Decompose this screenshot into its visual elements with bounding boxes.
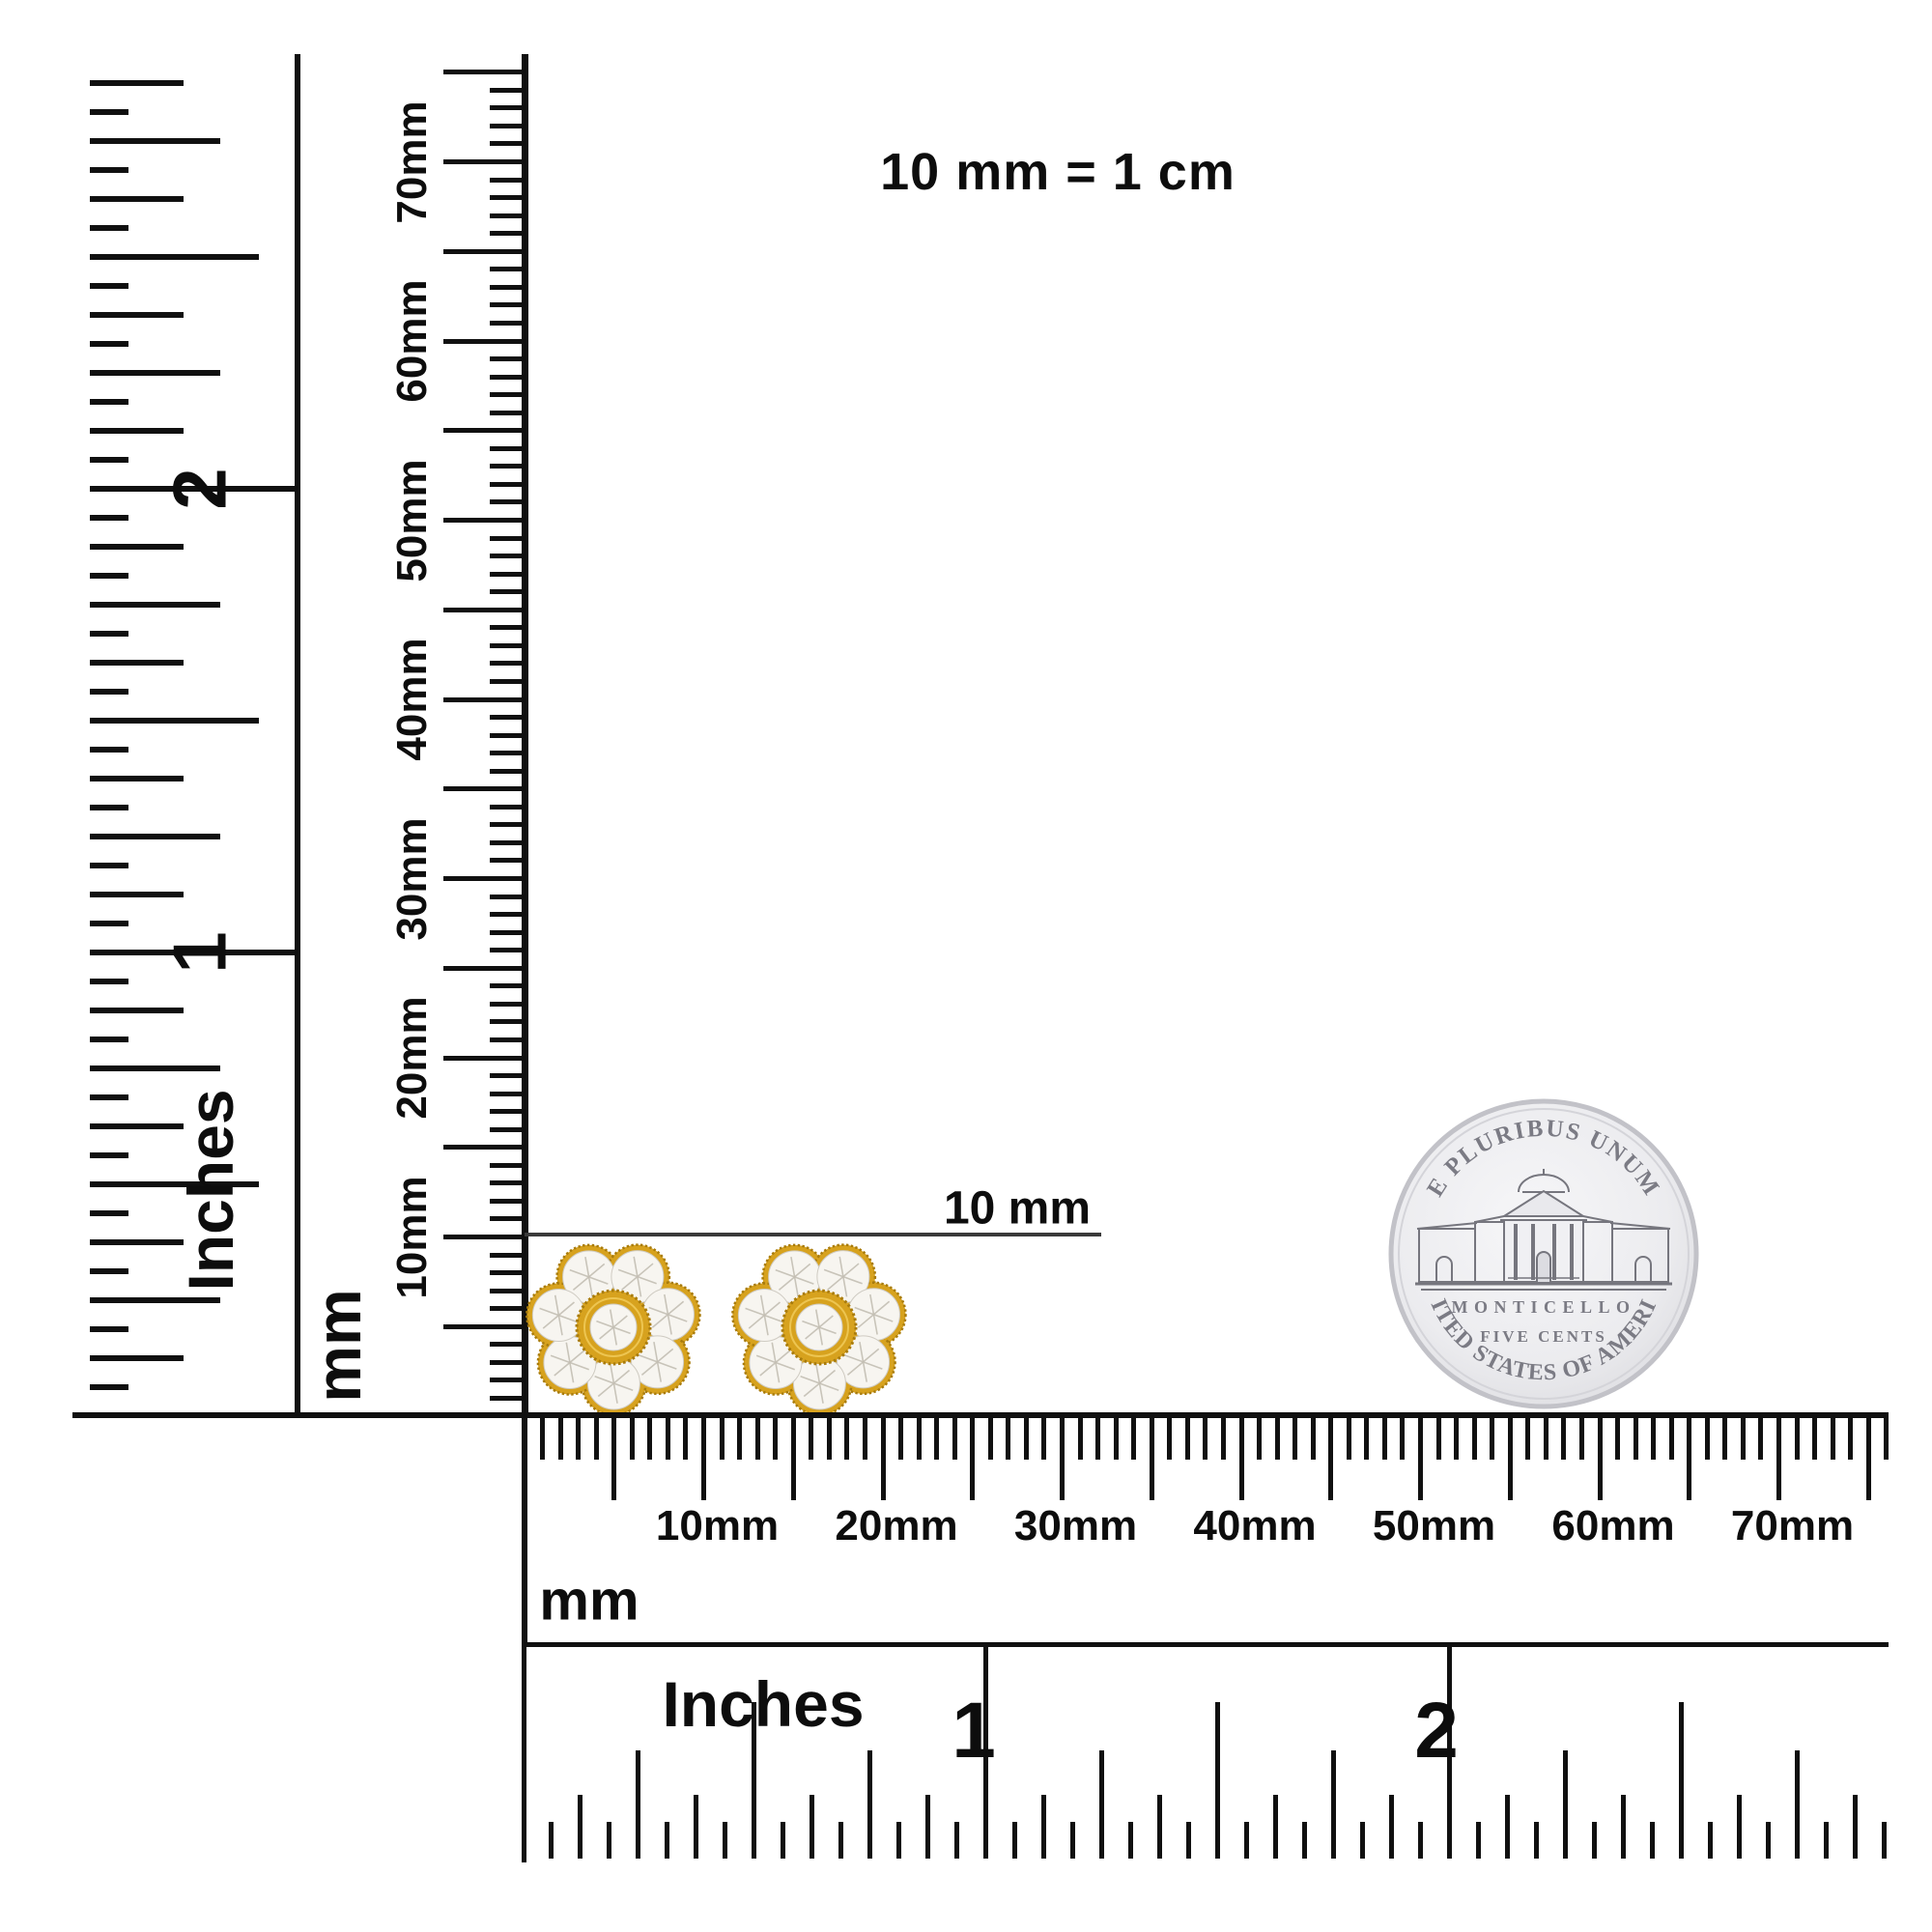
ruler-tick <box>90 805 128 810</box>
ruler-tick <box>490 1199 528 1204</box>
ruler-tick <box>90 80 184 86</box>
ruler-tick <box>1795 1418 1800 1460</box>
ruler-tick <box>90 515 128 521</box>
ruler-tick <box>1257 1418 1262 1460</box>
ruler-tick <box>490 195 528 200</box>
ruler-tick <box>1598 1418 1603 1500</box>
ruler-tick <box>490 1127 528 1132</box>
ruler-tick <box>490 178 528 183</box>
ruler-tick <box>490 948 528 952</box>
ruler-tick <box>490 733 528 738</box>
ruler-tick <box>755 1418 760 1460</box>
ruler-tick <box>490 822 528 827</box>
ruler-tick <box>90 225 128 231</box>
ruler-tick <box>490 464 528 469</box>
ruler-tick <box>647 1418 652 1460</box>
ruler-tick <box>594 1418 599 1460</box>
ruler-tick <box>90 660 184 666</box>
left-inch-ruler-unit-label: Inches <box>174 1089 247 1291</box>
ruler-tick <box>549 1822 554 1859</box>
ruler-tick <box>443 1324 528 1329</box>
ruler-tick <box>90 167 128 173</box>
ruler-tick <box>1741 1418 1746 1460</box>
ruler-tick <box>490 840 528 845</box>
ruler-tick <box>90 1268 128 1274</box>
ruler-tick <box>443 876 528 881</box>
ruler-tick <box>490 392 528 397</box>
ruler-tick <box>1766 1822 1771 1859</box>
ruler-tick <box>90 138 220 144</box>
ruler-tick <box>1651 1418 1656 1460</box>
ruler-tick <box>443 159 528 164</box>
ruler-tick <box>1302 1822 1307 1859</box>
ruler-tick <box>490 661 528 666</box>
ruler-tick <box>1579 1418 1584 1460</box>
ruler-tick <box>1244 1822 1249 1859</box>
ruler-tick <box>490 213 528 218</box>
ruler-tick <box>1360 1822 1365 1859</box>
bottom-inch-ruler-left-edge <box>522 1642 526 1862</box>
ruler-tick <box>954 1822 959 1859</box>
ruler-tick <box>1167 1418 1172 1460</box>
ruler-tick <box>443 339 528 344</box>
ruler-tick <box>90 109 128 115</box>
ruler-tick <box>723 1822 727 1859</box>
bottom-mm-ruler-left-edge <box>522 1412 527 1647</box>
ruler-tick <box>1758 1418 1763 1460</box>
ruler-tick <box>1012 1822 1017 1859</box>
ruler-tick <box>665 1822 669 1859</box>
ruler-tick <box>1185 1418 1190 1460</box>
ruler-tick <box>490 1037 528 1042</box>
ruler-tick <box>490 1109 528 1114</box>
ruler-tick <box>90 602 220 608</box>
ruler-tick <box>1563 1750 1568 1859</box>
ruler-tick <box>1215 1702 1220 1859</box>
diamond-flower-earrings <box>522 1236 918 1422</box>
flower-earring <box>732 1245 905 1415</box>
ruler-tick <box>90 1065 220 1071</box>
ruler-tick <box>443 518 528 523</box>
ruler-tick <box>1505 1795 1510 1859</box>
ruler-tick <box>810 1795 814 1859</box>
ruler-tick <box>1544 1418 1548 1460</box>
ruler-tick <box>1615 1418 1620 1460</box>
ruler-tick <box>791 1418 796 1500</box>
ruler-tick <box>1070 1822 1075 1859</box>
ruler-tick <box>683 1418 688 1460</box>
bottom-mm-ruler-label: 60mm <box>1551 1502 1674 1550</box>
conversion-note: 10 mm = 1 cm <box>880 142 1236 202</box>
ruler-tick <box>90 1094 128 1100</box>
ruler-tick <box>917 1418 922 1460</box>
ruler-tick <box>490 321 528 326</box>
ruler-tick <box>443 966 528 971</box>
ruler-tick <box>578 1795 582 1859</box>
ruler-tick <box>827 1418 832 1460</box>
ruler-tick <box>443 1145 528 1150</box>
ruler-tick <box>90 892 184 897</box>
ruler-tick <box>1490 1418 1494 1460</box>
ruler-tick <box>1848 1418 1853 1460</box>
ruler-tick <box>490 446 528 451</box>
ruler-tick <box>490 1216 528 1221</box>
ruler-tick <box>1776 1418 1781 1500</box>
ruler-tick <box>1418 1822 1423 1859</box>
ruler-tick <box>809 1418 813 1460</box>
ruler-tick <box>1669 1418 1674 1460</box>
ruler-tick <box>90 428 184 434</box>
ruler-tick <box>490 805 528 810</box>
ruler-tick <box>1525 1418 1530 1460</box>
ruler-tick <box>1824 1822 1829 1859</box>
ruler-tick <box>490 285 528 290</box>
ruler-tick <box>1041 1418 1046 1460</box>
ruler-tick <box>1737 1795 1742 1859</box>
ruler-tick <box>1006 1418 1010 1460</box>
ruler-tick <box>490 1019 528 1024</box>
ruler-tick <box>925 1795 930 1859</box>
ruler-tick <box>90 1008 184 1013</box>
vertical-mm-ruler-label: 60mm <box>388 279 437 402</box>
ruler-tick <box>1382 1418 1387 1460</box>
ruler-tick <box>490 411 528 415</box>
ruler-tick <box>881 1418 886 1500</box>
vertical-mm-ruler-label: 30mm <box>388 817 437 940</box>
ruler-tick <box>490 679 528 684</box>
ruler-tick <box>844 1418 849 1460</box>
ruler-tick <box>490 141 528 146</box>
ruler-tick <box>867 1750 872 1859</box>
bottom-mm-ruler-unit-label: mm <box>539 1569 639 1634</box>
nickel-coin: E PLURIBUS UNUM UNITED STATES OF AMERICA <box>1388 1098 1699 1409</box>
ruler-tick <box>490 1092 528 1096</box>
ruler-tick <box>1347 1418 1351 1460</box>
ruler-tick <box>1203 1418 1207 1460</box>
measurement-label: 10 mm <box>944 1182 1091 1236</box>
ruler-tick <box>1634 1418 1638 1460</box>
ruler-tick <box>1095 1418 1100 1460</box>
inch-number: 2 <box>156 468 244 509</box>
ruler-tick <box>611 1418 616 1500</box>
ruler-tick <box>490 124 528 128</box>
bottom-inch-ruler-unit-label: Inches <box>662 1667 864 1741</box>
ruler-tick <box>898 1418 903 1460</box>
ruler-tick <box>1621 1795 1626 1859</box>
ruler-tick <box>90 370 220 376</box>
ruler-tick <box>1882 1822 1887 1859</box>
ruler-tick <box>896 1822 901 1859</box>
ruler-tick <box>90 573 128 579</box>
ruler-tick <box>90 341 128 347</box>
ruler-tick <box>970 1418 975 1500</box>
ruler-tick <box>490 482 528 487</box>
ruler-tick <box>90 1123 184 1129</box>
vertical-mm-ruler-unit-label: mm <box>301 1289 375 1402</box>
ruler-tick <box>90 1037 128 1042</box>
ruler-tick <box>1364 1418 1369 1460</box>
ruler-tick <box>636 1750 640 1859</box>
ruler-tick <box>490 912 528 917</box>
ruler-tick <box>1239 1418 1244 1500</box>
ruler-tick <box>490 589 528 594</box>
ruler-tick <box>1687 1418 1691 1500</box>
ruler-tick <box>1454 1418 1459 1460</box>
bottom-mm-ruler-label: 10mm <box>656 1502 779 1550</box>
ruler-tick <box>1157 1795 1162 1859</box>
ruler-tick <box>1186 1822 1191 1859</box>
ruler-tick <box>1328 1418 1333 1500</box>
ruler-tick <box>1273 1795 1278 1859</box>
ruler-tick <box>490 231 528 236</box>
ruler-tick <box>490 858 528 863</box>
ruler-tick <box>490 267 528 271</box>
inch-number: 1 <box>952 1686 996 1776</box>
ruler-tick <box>490 1180 528 1185</box>
ruler-tick <box>701 1418 706 1500</box>
ruler-tick <box>1722 1418 1727 1460</box>
ruler-tick <box>558 1418 563 1460</box>
ruler-tick <box>1650 1822 1655 1859</box>
ruler-tick <box>1795 1750 1800 1859</box>
ruler-tick <box>490 1163 528 1168</box>
ruler-tick <box>90 863 128 868</box>
ruler-tick <box>1508 1418 1513 1500</box>
ruler-tick <box>90 312 184 318</box>
ruler-tick <box>490 356 528 361</box>
bottom-inch-ruler-top-line <box>522 1642 1889 1647</box>
ruler-tick <box>490 930 528 935</box>
ruler-tick <box>90 689 128 695</box>
ruler-tick <box>90 979 128 984</box>
ruler-tick <box>490 499 528 504</box>
ruler-tick <box>490 536 528 541</box>
coin-building-label: MONTICELLO <box>1451 1297 1635 1317</box>
ruler-tick <box>1078 1418 1083 1460</box>
ruler-tick <box>490 769 528 774</box>
ruler-tick <box>934 1418 939 1460</box>
vertical-mm-ruler-label: 40mm <box>388 638 437 760</box>
ruler-tick <box>1831 1418 1835 1460</box>
ruler-tick <box>607 1822 611 1859</box>
inch-number: 2 <box>1414 1686 1459 1776</box>
ruler-tick <box>90 544 184 550</box>
ruler-tick <box>630 1418 635 1460</box>
ruler-tick <box>1561 1418 1566 1460</box>
ruler-tick <box>720 1418 724 1460</box>
ruler-tick <box>90 1384 128 1390</box>
ruler-tick <box>443 786 528 791</box>
ruler-tick <box>490 1002 528 1007</box>
ruler-tick <box>1534 1822 1539 1859</box>
ruler-tick <box>90 196 184 202</box>
ruler-tick <box>1275 1418 1280 1460</box>
flower-earring <box>526 1245 699 1415</box>
ruler-tick <box>1150 1418 1154 1500</box>
vertical-mm-ruler-label: 20mm <box>388 996 437 1119</box>
ruler-tick <box>1866 1418 1871 1500</box>
ruler-tick <box>988 1418 993 1460</box>
ruler-tick <box>1436 1418 1441 1460</box>
inch-number: 1 <box>156 931 244 973</box>
ruler-tick <box>1221 1418 1226 1460</box>
ruler-tick <box>576 1418 581 1460</box>
ruler-tick <box>443 1235 528 1239</box>
ruler-tick <box>443 1056 528 1061</box>
ruler-tick <box>1884 1418 1889 1460</box>
ruler-tick <box>1060 1418 1065 1500</box>
ruler-tick <box>90 1326 128 1332</box>
ruler-tick <box>90 834 220 839</box>
ruler-tick <box>90 254 259 260</box>
ruler-tick <box>490 643 528 648</box>
ruler-tick <box>90 921 128 926</box>
ruler-tick <box>1311 1418 1316 1460</box>
ruler-tick <box>838 1822 843 1859</box>
ruler-tick <box>952 1418 957 1460</box>
ruler-tick <box>1418 1418 1423 1500</box>
ruler-tick <box>90 1210 128 1216</box>
ruler-tick <box>781 1822 785 1859</box>
bottom-mm-ruler-label: 50mm <box>1373 1502 1495 1550</box>
coin-denomination: FIVE CENTS <box>1480 1327 1607 1346</box>
ruler-tick <box>90 1355 184 1361</box>
ruler-tick <box>490 625 528 630</box>
ruler-tick <box>1131 1418 1136 1460</box>
ruler-tick <box>90 283 128 289</box>
ruler-tick <box>90 399 128 405</box>
ruler-tick <box>490 88 528 93</box>
ruler-tick <box>490 302 528 307</box>
left-inch-ruler-edge <box>295 54 300 1418</box>
ruler-tick <box>490 895 528 899</box>
bottom-mm-ruler-label: 70mm <box>1731 1502 1854 1550</box>
ruler-tick <box>694 1795 698 1859</box>
ruler-tick <box>490 375 528 380</box>
ruler-tick <box>90 747 128 753</box>
ruler-tick <box>1293 1418 1297 1460</box>
ruler-tick <box>490 983 528 988</box>
bottom-mm-ruler-label: 20mm <box>835 1502 957 1550</box>
ruler-tick <box>490 105 528 110</box>
ruler-tick <box>1812 1418 1817 1460</box>
product-scale-image: 10 mm = 1 cm 1 2 Inches 10mm20mm30mm40mm… <box>0 0 1932 1932</box>
vertical-mm-ruler-label: 10mm <box>388 1176 437 1298</box>
ruler-tick <box>1331 1750 1336 1859</box>
ruler-tick <box>1476 1822 1481 1859</box>
ruler-tick <box>1041 1795 1046 1859</box>
ruler-tick <box>443 249 528 254</box>
ruler-tick <box>90 1297 220 1303</box>
ruler-tick <box>490 572 528 577</box>
ruler-tick <box>443 428 528 433</box>
ruler-tick <box>1705 1418 1710 1460</box>
ruler-tick <box>773 1418 778 1460</box>
ruler-tick <box>1114 1418 1119 1460</box>
ruler-tick <box>90 776 184 781</box>
ruler-tick <box>90 457 128 463</box>
ruler-tick <box>490 715 528 720</box>
ruler-tick <box>443 697 528 702</box>
bottom-mm-ruler-label: 40mm <box>1193 1502 1316 1550</box>
ruler-tick <box>737 1418 742 1460</box>
ruler-tick <box>490 1073 528 1078</box>
ruler-tick <box>443 608 528 612</box>
ruler-tick <box>1099 1750 1104 1859</box>
ruler-tick <box>490 751 528 755</box>
vertical-mm-ruler-label: 70mm <box>388 100 437 223</box>
ruler-tick <box>90 1239 184 1245</box>
ruler-tick <box>90 1152 128 1158</box>
ruler-tick <box>540 1418 545 1460</box>
ruler-tick <box>90 631 128 637</box>
ruler-tick <box>1400 1418 1405 1460</box>
ruler-tick <box>490 554 528 558</box>
bottom-mm-ruler-label: 30mm <box>1014 1502 1137 1550</box>
ruler-tick <box>666 1418 670 1460</box>
ruler-tick <box>1708 1822 1713 1859</box>
ruler-tick <box>1389 1795 1394 1859</box>
ruler-tick <box>1128 1822 1133 1859</box>
ruler-tick <box>1853 1795 1858 1859</box>
ruler-tick <box>90 718 259 724</box>
ruler-tick <box>1679 1702 1684 1859</box>
ruler-tick <box>443 70 528 74</box>
ruler-tick <box>863 1418 867 1460</box>
ruler-tick <box>1472 1418 1477 1460</box>
ruler-tick <box>1024 1418 1029 1460</box>
ruler-tick <box>1592 1822 1597 1859</box>
vertical-mm-ruler-label: 50mm <box>388 459 437 582</box>
